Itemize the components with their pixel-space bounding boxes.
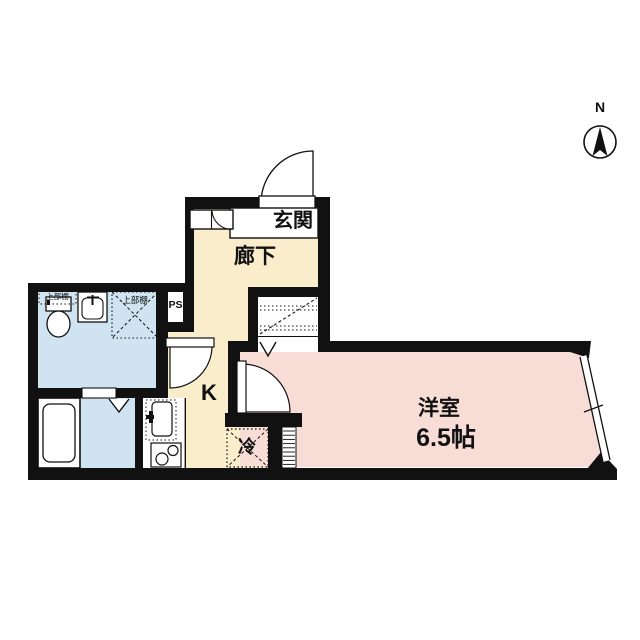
stove [151,443,181,467]
loft-ladder [282,427,296,468]
entrance-door [259,151,315,210]
upper-shelf-label-2: 上部棚 [116,296,154,305]
entrance-label: 玄関 [253,211,333,231]
western-room-size-label: 6.5帖 [386,426,506,451]
western-room-label: 洋室 [389,398,489,419]
floor-plan-drawing [0,0,640,640]
bathtub [38,398,80,468]
shoe-cabinet [190,210,233,230]
compass-north-label: N [585,100,615,114]
refrigerator-label: 冷 [227,438,267,456]
floor-plan: N 玄関 廊下 K 冷 洋室 6.5帖 PS 上部棚 上部棚 [0,0,640,640]
kitchen-label: K [189,382,229,404]
pipe-space-label: PS [163,300,188,311]
loft-closet-floor [258,296,318,352]
compass-icon [584,126,616,158]
upper-shelf-label-1: 上部棚 [39,293,76,301]
toilet [46,297,71,337]
hallway-label: 廊下 [215,246,295,267]
vanity-sink [78,292,107,322]
